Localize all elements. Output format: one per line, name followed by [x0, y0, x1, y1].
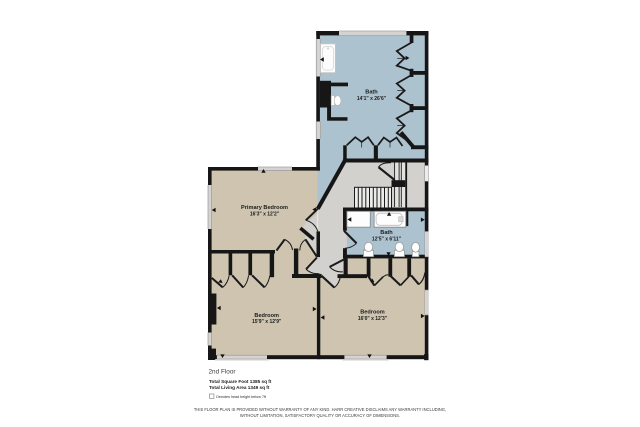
svg-text:2nd Floor: 2nd Floor: [209, 368, 237, 375]
svg-text:THIS FLOOR PLAN IS PROVIDED WI: THIS FLOOR PLAN IS PROVIDED WITHOUT WARR…: [194, 407, 446, 412]
svg-text:Bedroom: Bedroom: [254, 313, 279, 319]
svg-text:16'3" x 12'2": 16'3" x 12'2": [250, 211, 280, 217]
svg-text:Total Square Foot 1385 sq ft: Total Square Foot 1385 sq ft: [209, 379, 272, 384]
svg-text:Bedroom: Bedroom: [360, 310, 385, 316]
svg-text:14'1" x 26'6": 14'1" x 26'6": [357, 96, 387, 102]
svg-text:Total Living Area 1349 sq ft: Total Living Area 1349 sq ft: [209, 385, 270, 390]
svg-text:WITHOUT LIMITATION, SATISFACTO: WITHOUT LIMITATION, SATISFACTORY QUALITY…: [240, 413, 400, 418]
svg-text:Bath: Bath: [380, 230, 393, 236]
svg-text:Bath: Bath: [365, 89, 378, 95]
svg-text:16'0" x 12'3": 16'0" x 12'3": [358, 316, 388, 322]
svg-text:12'5" x 6'11": 12'5" x 6'11": [372, 236, 402, 242]
svg-text:15'9" x 12'9": 15'9" x 12'9": [252, 319, 282, 325]
svg-text:Primary Bedroom: Primary Bedroom: [241, 205, 288, 211]
svg-text:Denotes head height below 7ft: Denotes head height below 7ft: [216, 395, 266, 399]
